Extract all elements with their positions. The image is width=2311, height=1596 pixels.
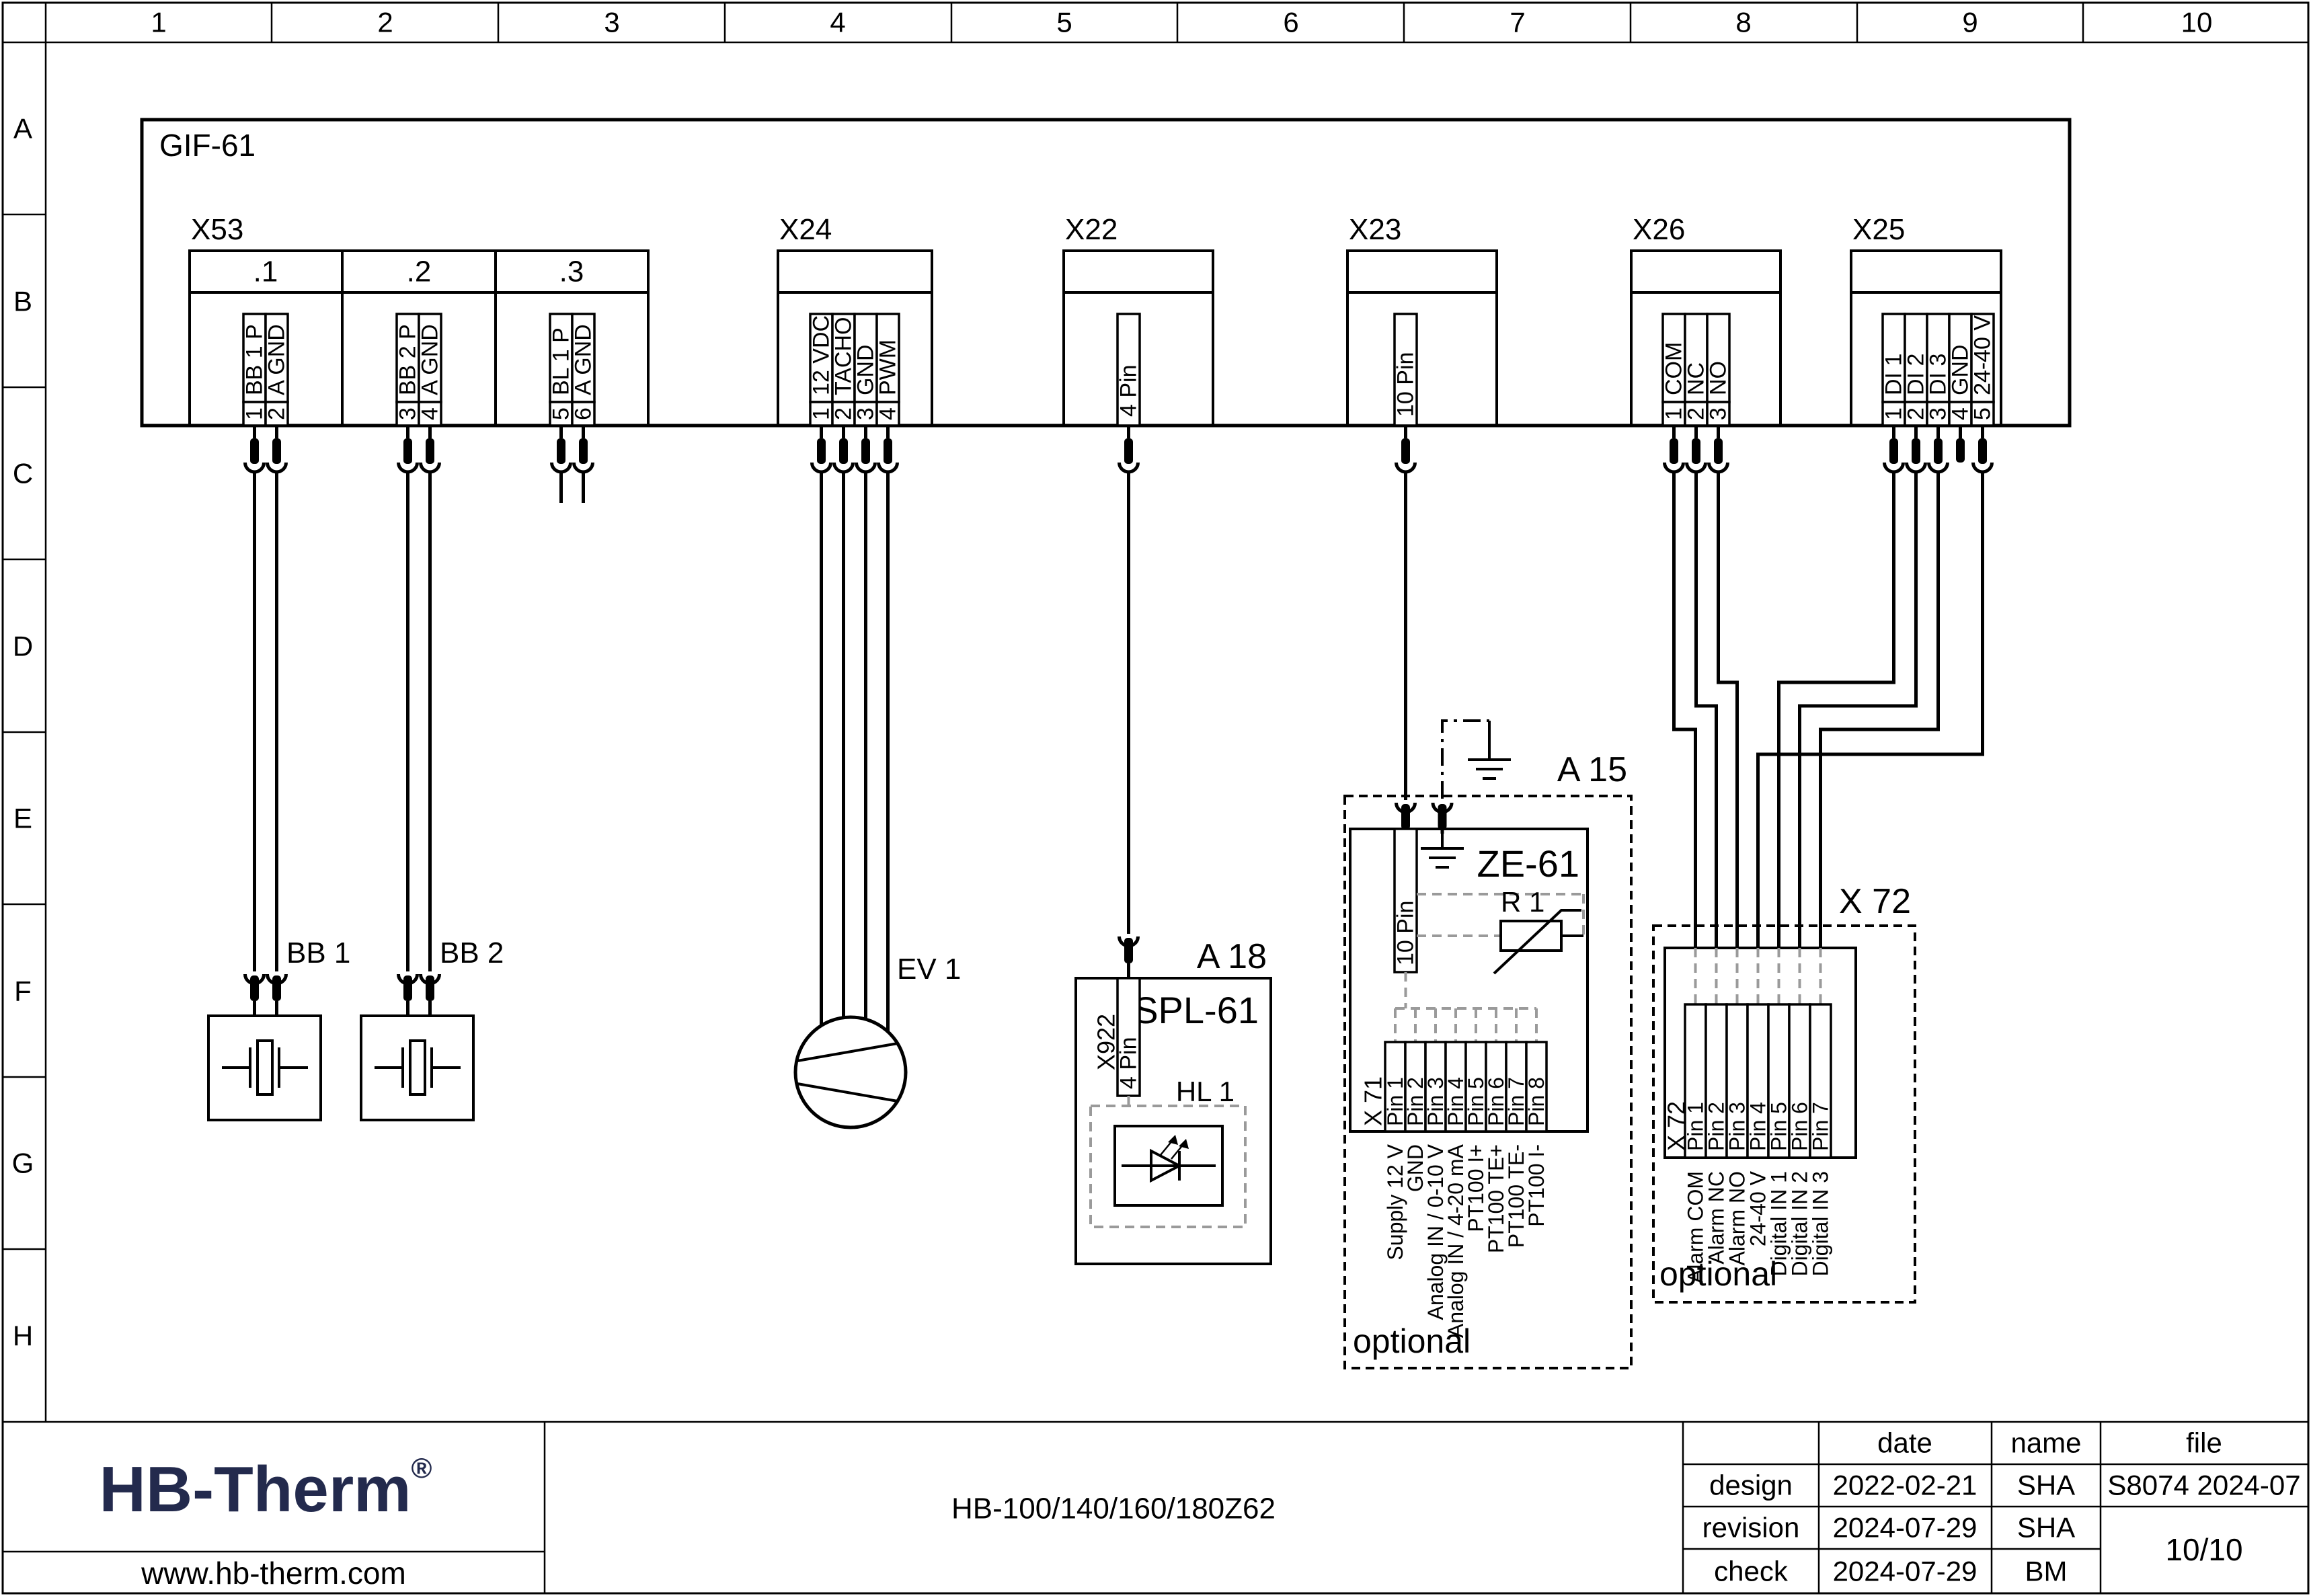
ruler-col: 10 [2181,7,2213,38]
device-label: BB 1 [286,936,350,969]
logo-registered-mark: ® [412,1452,432,1484]
ruler-col: 4 [830,7,845,38]
module-name: ZE-61 [1477,842,1580,885]
x53-cell-label: .2 [407,255,432,288]
design-date: 2022-02-21 [1833,1470,1977,1501]
ruler-row: A [13,113,32,145]
drawing-frame [3,3,2308,1593]
module-ref: A 18 [1197,937,1267,976]
signal-label: Digital IN 3 [1809,1171,1833,1277]
connector-label: X24 [779,213,832,246]
pin-label: Pin 8 [1524,1077,1549,1126]
pin-label: Pin 7 [1809,1102,1833,1151]
pin-number: 4 [418,407,443,420]
pin-label: A GND [571,324,596,395]
pin-label: 10 Pin [1393,352,1419,417]
ruler-row: G [12,1148,34,1179]
ruler-col: 3 [604,7,619,38]
module-name: SPL-61 [1133,989,1259,1031]
ruler-col: 1 [151,7,166,38]
connector-label: X23 [1349,213,1401,246]
ruler-row: C [13,458,33,489]
x53-cell-label: .1 [253,255,278,288]
x71-pin-row: X 71 Pin 1 Pin 2 Pin 3 Pin 4 Pin 5 Pin 6… [1360,1042,1549,1131]
optional-label: optional [1353,1322,1471,1360]
design-name: SHA [2017,1470,2075,1501]
signal-label: PT100 I- [1524,1144,1549,1227]
board-label: GIF-61 [159,128,256,163]
module-ref: A 15 [1557,750,1627,789]
connector-label: X53 [191,213,243,246]
x53-cell-label: .3 [559,255,584,288]
pin-label: A GND [264,324,290,395]
ruler-row: F [14,975,32,1007]
optional-label: optional [1659,1255,1777,1293]
connector-label: X25 [1852,213,1905,246]
hl1-label: HL 1 [1176,1076,1235,1107]
x24-pin-blocks: 12 VDC TACHO GND PWM 1 2 3 4 [809,314,901,426]
pin-label: 4 Pin [1116,365,1142,417]
connector-label: X26 [1633,213,1685,246]
check-name: BM [2025,1556,2068,1587]
pin-number: 5 [1970,407,1996,420]
ruler-col: 8 [1735,7,1751,38]
company-logo: HB-Therm® [100,1452,432,1525]
company-url: www.hb-therm.com [141,1556,406,1591]
ruler-col: 9 [1962,7,1977,38]
ruler-row: E [13,803,32,834]
check-date: 2024-07-29 [1833,1556,1977,1587]
file-value: S8074 2024-07 [2107,1470,2300,1501]
page-number: 10/10 [2165,1532,2242,1567]
r1-label: R 1 [1501,886,1544,918]
schematic-canvas: 1 2 3 4 5 6 7 8 9 10 A B C D E F G H GIF… [0,0,2311,1596]
device-label: EV 1 [897,953,961,986]
ruler-row: H [13,1320,33,1352]
connector-label: X22 [1065,213,1118,246]
ruler-col: 2 [377,7,393,38]
col-header-name: name [2010,1427,2081,1459]
ruler-col: 5 [1056,7,1072,38]
device-label: BB 2 [440,936,504,969]
model-title: HB-100/140/160/180Z62 [951,1492,1276,1525]
connector-label: X922 [1093,1014,1120,1070]
row-label-check: check [1714,1556,1789,1587]
pin-label: A GND [418,324,443,395]
ruler-col: 6 [1283,7,1298,38]
revision-name: SHA [2017,1512,2075,1544]
pin-label: PWM [875,340,901,395]
ruler-row: B [13,286,32,317]
col-header-file: file [2186,1427,2222,1459]
pin-label: 10 Pin [1393,901,1419,965]
ruler-row: D [13,631,33,662]
pin-number: 4 [875,407,901,420]
logo-text: HB-Therm [100,1453,412,1525]
pin-number: 6 [571,407,596,420]
row-label-revision: revision [1702,1512,1800,1544]
module-ref: X 72 [1839,882,1911,921]
pin-label: 24-40 V [1970,315,1996,395]
col-header-date: date [1877,1427,1932,1459]
pin-label: NO [1706,361,1731,395]
row-label-design: design [1709,1470,1793,1501]
ruler-col: 7 [1510,7,1525,38]
pin-number: 3 [1706,407,1731,420]
x72-pin-row: X 72 Pin 1 Pin 2 Pin 3 Pin 4 Pin 5 Pin 6… [1663,1004,1833,1158]
pin-number: 2 [264,407,290,420]
svg-text:HB-Therm®: HB-Therm® [100,1452,432,1525]
revision-date: 2024-07-29 [1833,1512,1977,1544]
